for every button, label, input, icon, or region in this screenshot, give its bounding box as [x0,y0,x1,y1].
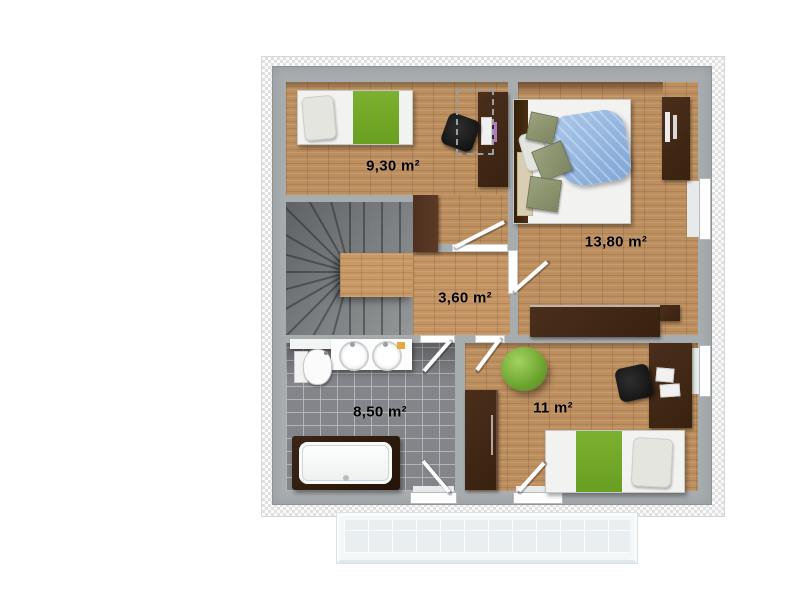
door-leaves [0,0,800,600]
area-label-bedroom-top-left: 9,30 m² [366,158,420,175]
area-label-bedroom-top-right: 13,80 m² [585,234,647,251]
area-label-hallway: 3,60 m² [438,290,492,307]
area-label-bedroom-bottom-right: 11 m² [533,400,573,417]
floor-plan: 9,30 m² 13,80 m² 3,60 m² 8,50 m² 11 m² [0,0,800,600]
balcony-terrace [337,513,637,563]
balcony-tiles [344,520,630,553]
area-label-bathroom: 8,50 m² [353,404,407,421]
